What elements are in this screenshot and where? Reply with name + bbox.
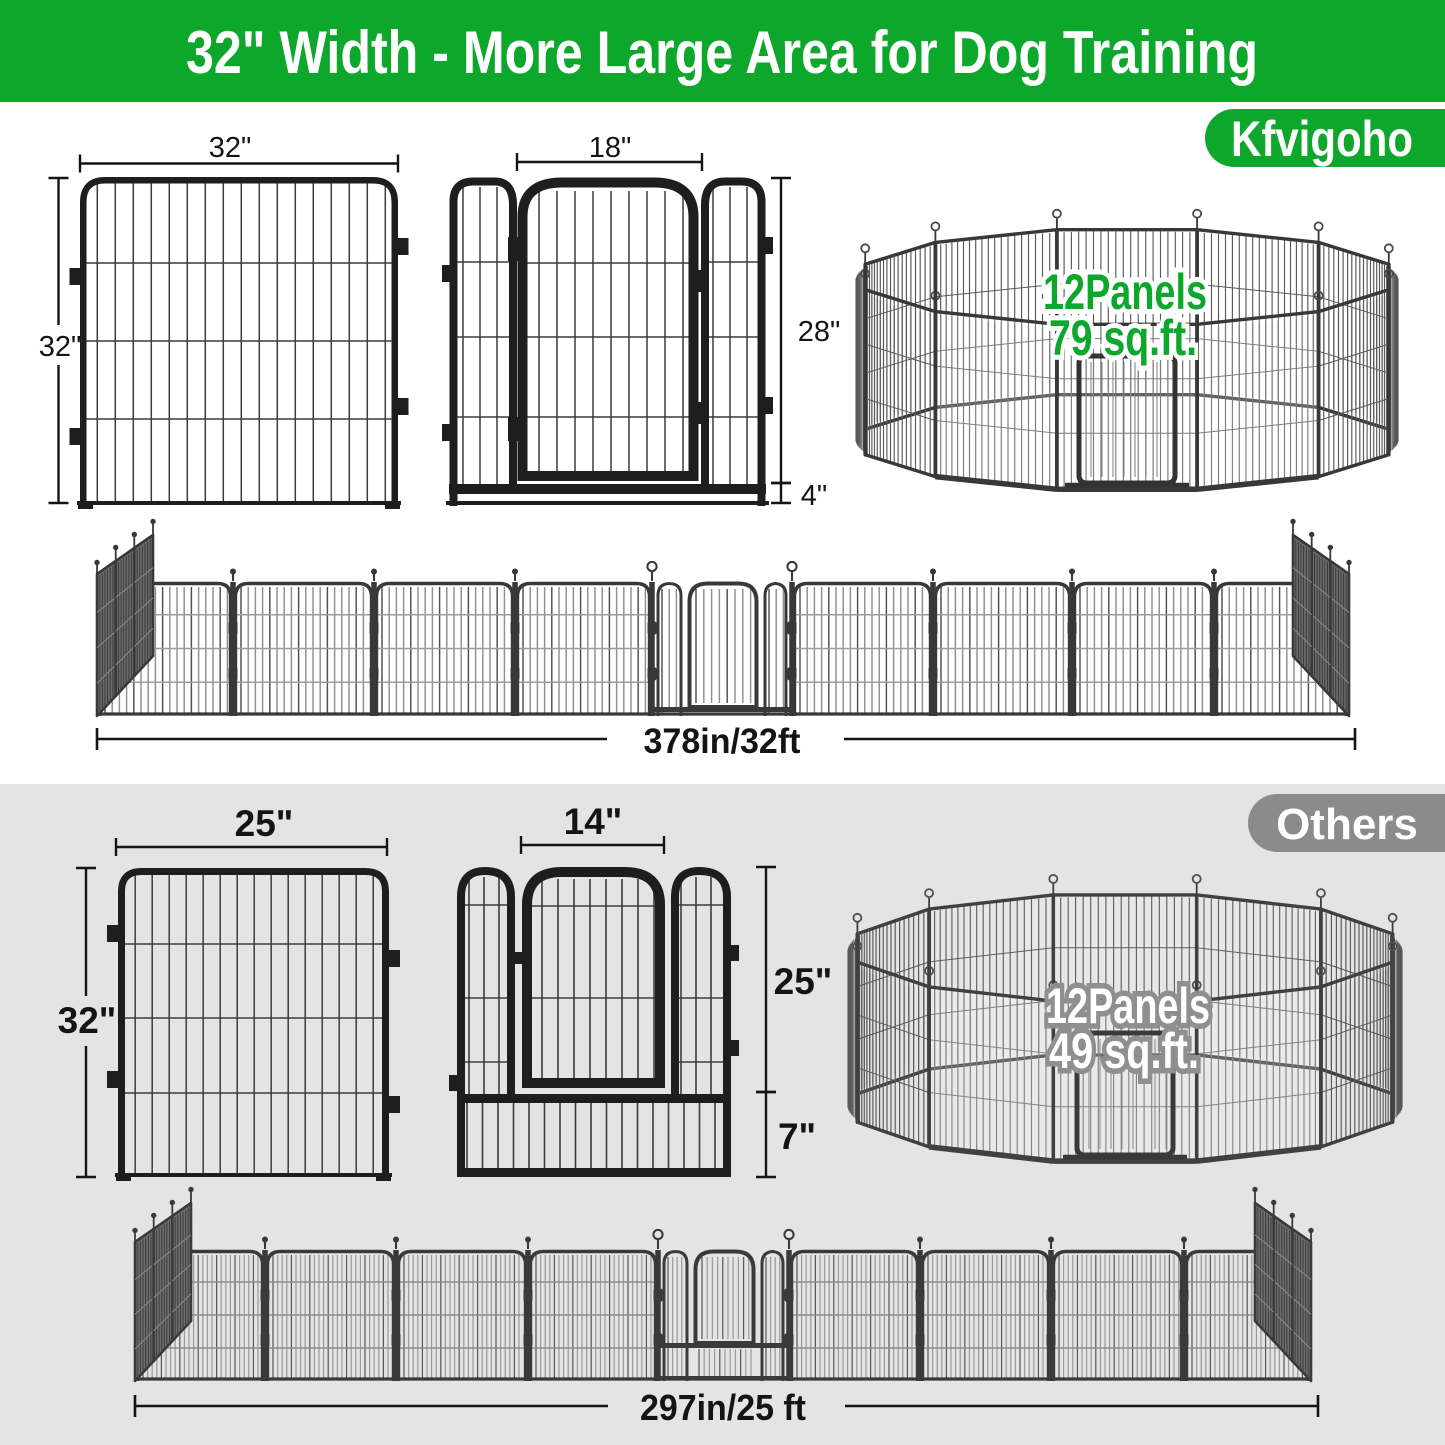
svg-text:28": 28" [798, 316, 841, 348]
svg-text:4": 4" [801, 480, 827, 512]
svg-text:25": 25" [235, 803, 294, 844]
svg-text:297in/25 ft: 297in/25 ft [640, 1387, 806, 1428]
svg-text:378in/32ft: 378in/32ft [644, 722, 801, 761]
svg-text:Kfvigoho: Kfvigoho [1231, 111, 1413, 167]
svg-text:32": 32" [58, 1000, 117, 1041]
svg-text:32": 32" [209, 132, 252, 164]
svg-text:32": 32" [39, 331, 82, 363]
svg-text:7": 7" [778, 1116, 816, 1157]
svg-text:32" Width - More Large Area fo: 32" Width - More Large Area for Dog Trai… [186, 19, 1258, 86]
svg-text:49 sq.ft.: 49 sq.ft. [1049, 1023, 1199, 1079]
svg-text:18": 18" [589, 132, 632, 164]
svg-text:25": 25" [774, 961, 833, 1002]
svg-text:14": 14" [564, 801, 623, 842]
svg-text:79 sq.ft.: 79 sq.ft. [1049, 310, 1197, 366]
svg-text:Others: Others [1276, 800, 1418, 849]
